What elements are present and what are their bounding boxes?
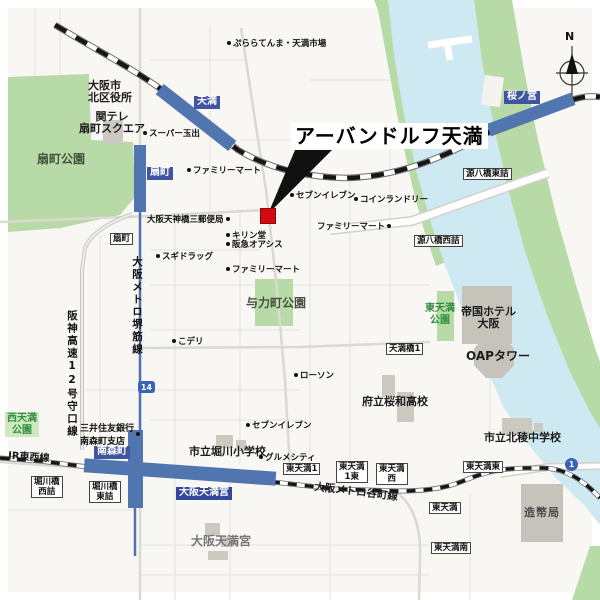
higashitemma1-higashi-frame: 東天満 1東 [336, 461, 368, 483]
kodeli-label: こデリ [178, 335, 204, 347]
gourmet-city-label: グルメシティ [265, 451, 316, 463]
smbc-dot-icon [136, 432, 140, 436]
compass-n-label: N [565, 30, 574, 43]
lawson-label: ローソン [300, 369, 334, 381]
property-marker [260, 208, 276, 224]
poi-dot-icon [227, 41, 231, 45]
higashitemma-higashi-frame: 東天満東 [463, 461, 503, 473]
ogimachi-park-label: 扇町公園 [37, 150, 85, 167]
higashitemma-minami-frame: 東天満南 [431, 542, 471, 554]
poi-dot-icon [290, 193, 294, 197]
owa-hs-label: 府立桜和高校 [362, 396, 428, 408]
route-14-shield: 14 [138, 381, 155, 393]
kantele-square-label: 関テレ 扇町スクエア [79, 111, 145, 135]
lawson-poi: ローソン [294, 369, 334, 381]
owa-hs-building-1 [382, 375, 395, 397]
post-office-label: 大阪天神橋三郵便局 [147, 213, 224, 225]
super-tamade-label: スーパー玉出 [149, 127, 200, 139]
smbc-label: 三井住友銀行 南森町支店 [80, 421, 134, 447]
sugi-drug-label: スギドラッグ [162, 250, 213, 262]
seven-center-poi: セブンイレブン [290, 189, 356, 201]
kita-ward-office-label: 大阪市 北区役所 [88, 80, 132, 104]
poi-dot-icon [187, 168, 191, 172]
yorikicho-park-label: 与力町公園 [246, 294, 306, 311]
ogimachi-intersection-frame: 扇町 [110, 233, 133, 245]
genpachibashi-nishi-frame: 源八橋西詰 [414, 235, 463, 247]
property-title: アーバンドルフ天満 [291, 123, 488, 149]
seven-south-poi: セブンイレブン [246, 419, 312, 431]
ogimachi-station-bar [134, 145, 146, 212]
poi-dot-icon [226, 217, 230, 221]
horikawabashi-nishi-frame: 堀川橋 西詰 [31, 476, 63, 498]
familymart-center-label: ファミリーマート [232, 263, 300, 275]
nishitemma-park-chip: 西天満 公園 [5, 412, 39, 437]
higashitemma-nishi-frame: 東天満 西 [376, 463, 408, 485]
seven-south-label: セブンイレブン [252, 419, 312, 431]
sakaisuji-line-label: 大阪メトロ堺筋線 [130, 256, 145, 356]
familymart-east-poi: ファミリーマート [317, 220, 391, 232]
poi-dot-icon [354, 197, 358, 201]
sakuranomiya-station-label: 桜ノ宮 [504, 91, 540, 104]
higashitemma-park-label: 東天満 公園 [425, 303, 455, 326]
horikawa-es-label: 市立堀川小学校 [189, 446, 266, 458]
hankyu-oasis-label: 阪急オアシス [232, 238, 283, 250]
familymart-north-label: ファミリーマート [193, 164, 261, 176]
poi-dot-icon [226, 233, 230, 237]
osakatemmangu-station-label: 大阪天満宮 [176, 487, 232, 500]
poi-dot-icon [143, 131, 147, 135]
poi-dot-icon [259, 455, 263, 459]
familymart-north-poi: ファミリーマート [187, 164, 261, 176]
temmangu-shrine-building-3 [208, 551, 228, 560]
hokuryo-jhs-label: 市立北稜中学校 [484, 432, 561, 444]
coin-laundry-label: コインランドリー [360, 193, 428, 205]
poi-dot-icon [226, 267, 230, 271]
temmangu-shrine-label: 大阪天満宮 [191, 535, 251, 548]
ogimachi-station-label: 扇町 [147, 167, 173, 180]
route-1-shield: 1 [565, 458, 578, 471]
purara-temma-label: ぷららてんま・天満市場 [233, 37, 326, 49]
temma-station-label: 天満 [194, 96, 220, 109]
purara-temma-poi: ぷららてんま・天満市場 [227, 37, 326, 49]
minamimorimachi-station-label: 南森町 [94, 446, 130, 459]
higashitemma1-frame: 東天満1 [283, 463, 320, 475]
map-canvas: 天満 桜ノ宮 扇町 南森町 大阪天満宮 JR東西線 大阪メトロ谷町線 大阪メトロ… [0, 0, 600, 600]
horikawabashi-higashi-frame: 堀川橋 東詰 [89, 481, 121, 503]
seven-center-label: セブンイレブン [296, 189, 356, 201]
poi-dot-icon [246, 423, 250, 427]
familymart-east-label: ファミリーマート [317, 220, 385, 232]
hanshin-expressway-label: 阪神高速12号守口線 [65, 310, 80, 438]
mint-label: 造幣局 [524, 507, 560, 519]
poi-dot-icon [156, 254, 160, 258]
familymart-center-poi: ファミリーマート [226, 263, 300, 275]
hankyu-oasis-poi: 阪急オアシス [226, 238, 283, 250]
imperial-hotel-label: 帝国ホテル 大阪 [461, 306, 516, 330]
poi-dot-icon [172, 339, 176, 343]
oap-tower-label: OAPタワー [466, 350, 530, 363]
poi-dot-icon [294, 373, 298, 377]
nishitemma-park-label: 西天満 公園 [7, 413, 37, 436]
coin-laundry-poi: コインランドリー [354, 193, 428, 205]
super-tamade-poi: スーパー玉出 [143, 127, 200, 139]
poi-dot-icon [387, 224, 391, 228]
gourmet-city-poi: グルメシティ [259, 451, 316, 463]
kodeli-poi: こデリ [172, 335, 204, 347]
genpachibashi-higashi-frame: 源八橋東詰 [463, 168, 512, 180]
sugi-drug-poi: スギドラッグ [156, 250, 213, 262]
post-office-poi: 大阪天神橋三郵便局 [147, 213, 230, 225]
temmabashi1-frame: 天満橋1 [386, 343, 423, 355]
poi-dot-icon [226, 242, 230, 246]
higashitemma-frame: 東天満 [429, 502, 461, 514]
smbc-poi: 三井住友銀行 南森町支店 [80, 421, 140, 447]
